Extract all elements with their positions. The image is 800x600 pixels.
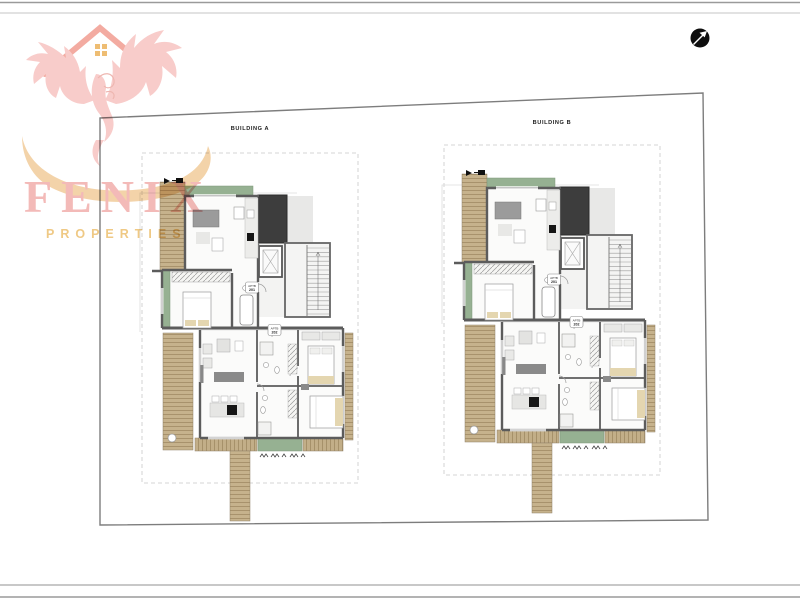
- svg-text:201: 201: [249, 288, 255, 292]
- fenix-logo: FENIX PROPERTIES: [0, 0, 260, 260]
- apt-tag-202-a: APTB 202: [268, 325, 281, 336]
- logo-subtitle: PROPERTIES: [46, 227, 187, 241]
- roof-window-icon: [95, 44, 107, 56]
- apt-tag-202-b: APTB 202: [570, 317, 583, 328]
- svg-text:202: 202: [574, 323, 580, 327]
- svg-text:APTB: APTB: [248, 284, 256, 288]
- phoenix-icon: [26, 30, 182, 166]
- svg-text:APTB: APTB: [550, 276, 558, 280]
- svg-text:201: 201: [551, 280, 557, 284]
- svg-text:202: 202: [272, 331, 278, 335]
- drawing-sheet: BUILDING A APTB 201 APTB 202 BUILDING B …: [0, 0, 800, 600]
- logo-name: FENIX: [24, 171, 212, 222]
- north-arrow-icon: [691, 29, 710, 48]
- building-b-label: BUILDING B: [533, 120, 572, 126]
- svg-text:APTB: APTB: [271, 326, 279, 330]
- apt-tag-201-a: APTB 201: [246, 282, 259, 293]
- svg-text:APTB: APTB: [573, 318, 581, 322]
- apt-tag-201-b: APTB 201: [548, 274, 561, 285]
